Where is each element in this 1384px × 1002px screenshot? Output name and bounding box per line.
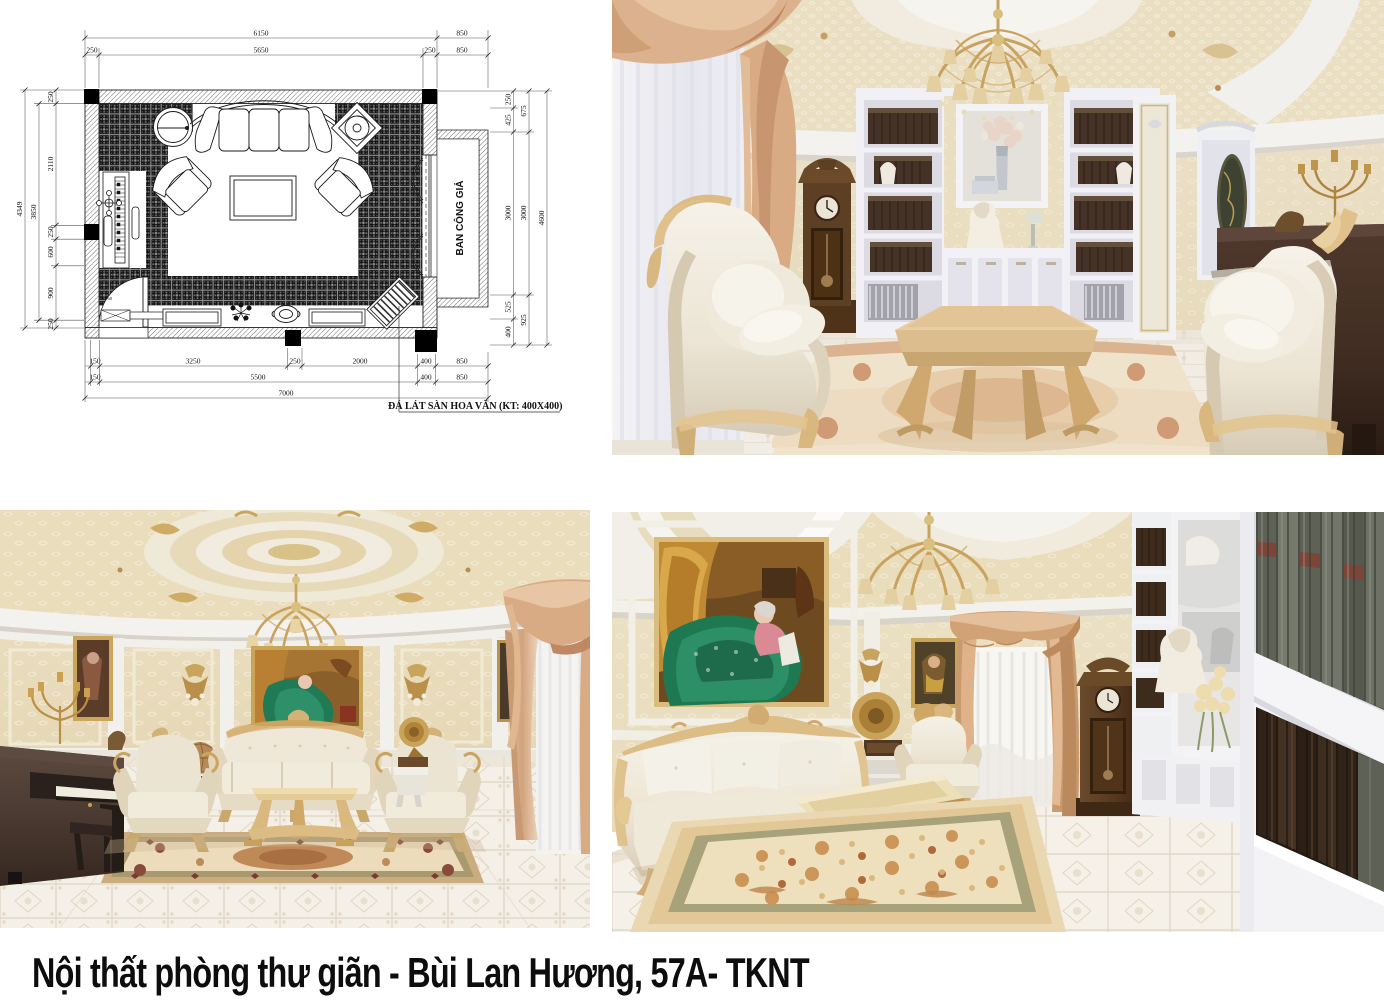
svg-text:3000: 3000: [504, 205, 513, 220]
svg-text:5500: 5500: [251, 373, 266, 382]
svg-text:5650: 5650: [254, 46, 269, 55]
svg-text:600: 600: [46, 246, 55, 258]
svg-text:250: 250: [504, 94, 513, 106]
svg-text:3850: 3850: [29, 204, 38, 219]
svg-text:250: 250: [86, 46, 98, 55]
svg-text:250: 250: [424, 46, 436, 55]
svg-text:900: 900: [46, 287, 55, 299]
svg-text:850: 850: [456, 46, 468, 55]
svg-text:150: 150: [89, 357, 101, 366]
svg-text:150: 150: [89, 373, 101, 382]
svg-text:250: 250: [46, 226, 55, 238]
svg-text:525: 525: [504, 301, 513, 313]
svg-text:3000: 3000: [519, 205, 528, 220]
svg-text:ĐÁ LÁT SÀN HOA VĂN (KT: 400X40: ĐÁ LÁT SÀN HOA VĂN (KT: 400X400): [388, 400, 562, 412]
svg-text:W760: W760: [101, 296, 113, 301]
svg-text:675: 675: [519, 105, 528, 117]
svg-text:425: 425: [504, 114, 513, 126]
svg-text:400: 400: [504, 326, 513, 338]
svg-text:BAN CÔNG GIẢ: BAN CÔNG GIẢ: [453, 181, 466, 256]
svg-text:400: 400: [420, 373, 432, 382]
svg-text:250: 250: [46, 91, 55, 103]
svg-text:7000: 7000: [279, 389, 294, 398]
svg-text:850: 850: [456, 357, 468, 366]
svg-text:400: 400: [420, 357, 432, 366]
svg-text:4349: 4349: [15, 201, 24, 216]
svg-text:250: 250: [46, 318, 55, 330]
svg-text:4600: 4600: [537, 210, 546, 225]
svg-text:2110: 2110: [46, 156, 55, 171]
svg-text:925: 925: [519, 314, 528, 326]
svg-text:250: 250: [289, 357, 301, 366]
svg-text:3250: 3250: [186, 357, 201, 366]
svg-text:850: 850: [456, 373, 468, 382]
svg-text:2000: 2000: [353, 357, 368, 366]
svg-text:850: 850: [456, 29, 468, 38]
svg-text:6150: 6150: [254, 29, 269, 38]
